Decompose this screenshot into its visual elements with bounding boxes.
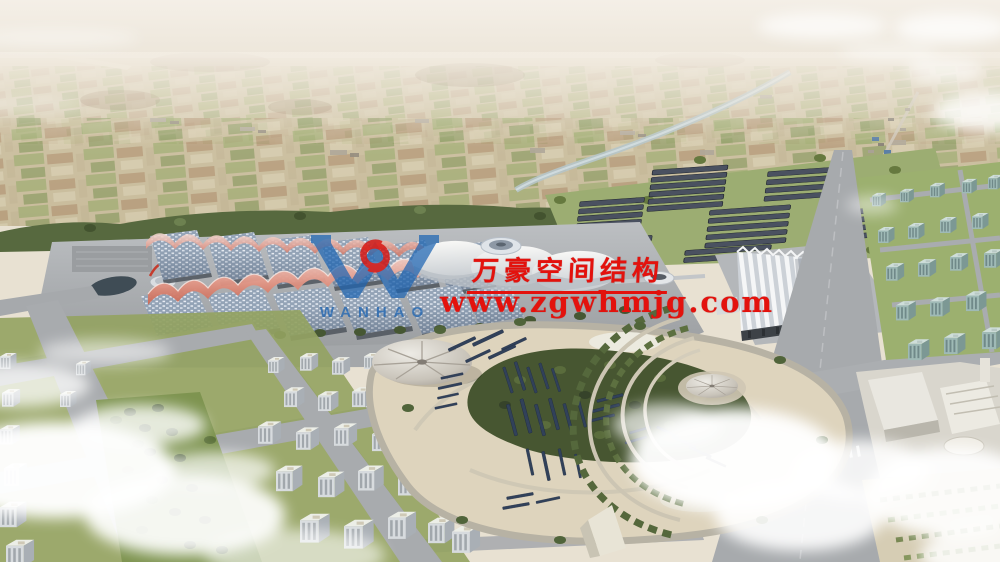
aerial-render-image: WANHAO 万豪空间结构 www.zgwhmjg.com bbox=[0, 0, 1000, 562]
scene-illustration bbox=[0, 0, 1000, 562]
small-cone-canopy bbox=[686, 374, 738, 398]
disc-building bbox=[481, 238, 521, 255]
horizon-haze bbox=[0, 52, 1000, 147]
